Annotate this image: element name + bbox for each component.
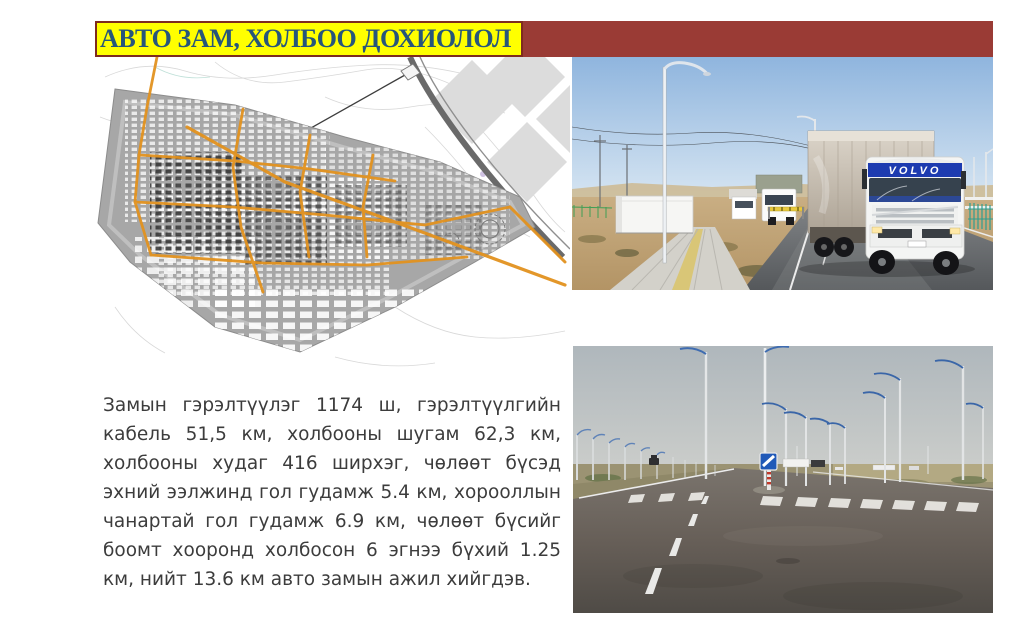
body-line: км, нийт 13.6 км авто замын ажил хийгдэв… [103, 565, 561, 594]
body-line: кабель 51,5 км, холбооны шугам 62,3 км, [103, 420, 561, 449]
slide: АВТО ЗАМ, ХОЛБОО ДОХИОЛОЛ [0, 0, 1024, 632]
title-highlight: АВТО ЗАМ, ХОЛБОО ДОХИОЛОЛ [95, 21, 523, 57]
body-line: эхний ээлжинд гол гудамж 5.4 км, хороолл… [103, 478, 561, 507]
container-building [616, 196, 693, 233]
slide-title: АВТО ЗАМ, ХОЛБОО ДОХИОЛОЛ [97, 24, 514, 54]
title-bar: АВТО ЗАМ, ХОЛБОО ДОХИОЛОЛ [95, 21, 993, 57]
body-line: Замын гэрэлтүүлэг 1174 ш, гэрэлтүүлгийн [103, 391, 561, 420]
body-paragraph: Замын гэрэлтүүлэг 1174 ш, гэрэлтүүлгийн … [103, 391, 561, 594]
body-line: боомт хооронд холбосон 6 эгнээ бүхий 1.2… [103, 536, 561, 565]
body-line: холбооны худаг 416 ширхэг, чөлөөт бүсэд [103, 449, 561, 478]
trucks-photo: VOLVO [572, 57, 993, 290]
trucks-photo-svg: VOLVO [572, 57, 993, 290]
road-photo [573, 346, 993, 613]
road-photo-svg [573, 346, 993, 613]
body-line: чанартай гол гудамж 6.9 км, чөлөөт бүсий… [103, 507, 561, 536]
volvo-logo-text: VOLVO [889, 165, 942, 177]
sky [573, 346, 993, 474]
city-master-plan-map [95, 57, 570, 380]
master-plan-svg [95, 57, 570, 380]
